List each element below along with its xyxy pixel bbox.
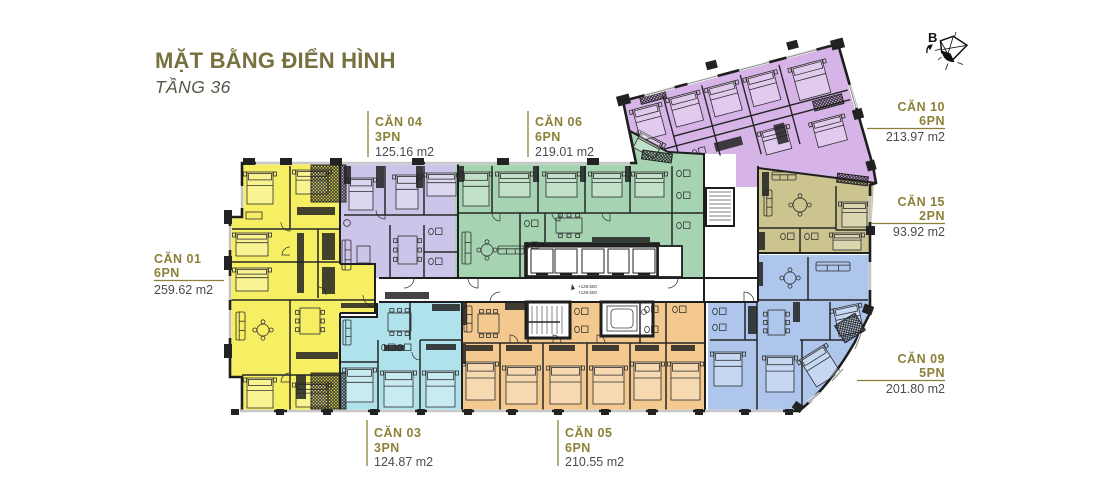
svg-text:213.97 m2: 213.97 m2 bbox=[886, 130, 945, 144]
svg-text:MẶT BẰNG ĐIỂN HÌNH: MẶT BẰNG ĐIỂN HÌNH bbox=[155, 48, 396, 73]
svg-text:6PN: 6PN bbox=[565, 441, 591, 455]
svg-text:6PN: 6PN bbox=[154, 266, 180, 280]
svg-text:6PN: 6PN bbox=[535, 130, 561, 144]
svg-text:5PN: 5PN bbox=[919, 366, 945, 380]
svg-text:+129.500: +129.500 bbox=[578, 290, 597, 295]
svg-text:CĂN 04: CĂN 04 bbox=[375, 114, 422, 129]
svg-text:CĂN 06: CĂN 06 bbox=[535, 114, 582, 129]
svg-text:3PN: 3PN bbox=[375, 130, 401, 144]
svg-text:93.92 m2: 93.92 m2 bbox=[893, 225, 945, 239]
svg-text:B: B bbox=[928, 30, 937, 45]
svg-text:CĂN 03: CĂN 03 bbox=[374, 425, 421, 440]
svg-text:124.87 m2: 124.87 m2 bbox=[374, 455, 433, 469]
svg-text:3PN: 3PN bbox=[374, 441, 400, 455]
svg-text:CĂN 10: CĂN 10 bbox=[898, 99, 945, 114]
svg-text:+129.500: +129.500 bbox=[578, 284, 597, 289]
svg-text:CĂN 01: CĂN 01 bbox=[154, 251, 201, 266]
svg-text:219.01 m2: 219.01 m2 bbox=[535, 145, 594, 159]
svg-text:TẦNG 36: TẦNG 36 bbox=[155, 76, 231, 97]
svg-text:CĂN 05: CĂN 05 bbox=[565, 425, 612, 440]
svg-text:125.16 m2: 125.16 m2 bbox=[375, 145, 434, 159]
svg-text:CĂN 09: CĂN 09 bbox=[898, 351, 945, 366]
svg-text:201.80 m2: 201.80 m2 bbox=[886, 382, 945, 396]
svg-text:2PN: 2PN bbox=[919, 209, 945, 223]
svg-text:210.55 m2: 210.55 m2 bbox=[565, 455, 624, 469]
svg-text:259.62 m2: 259.62 m2 bbox=[154, 283, 213, 297]
svg-text:CĂN 15: CĂN 15 bbox=[898, 194, 945, 209]
svg-text:6PN: 6PN bbox=[919, 114, 945, 128]
